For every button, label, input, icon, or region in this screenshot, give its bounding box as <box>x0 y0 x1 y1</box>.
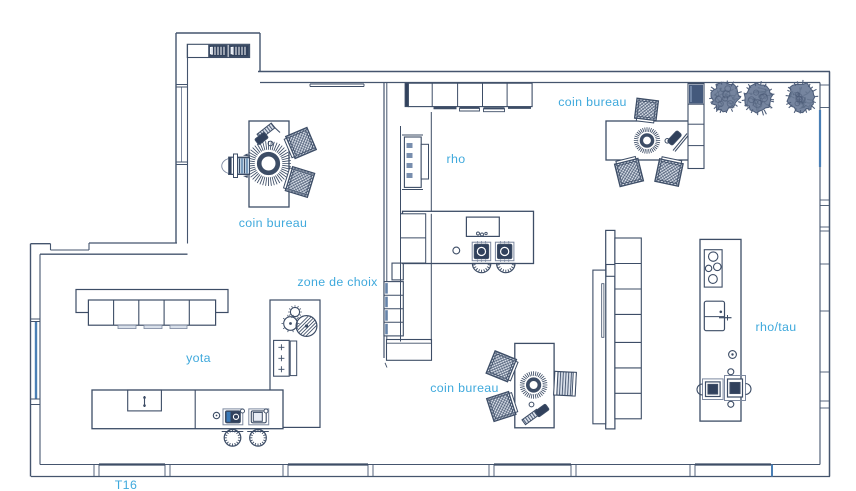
svg-text:coin bureau: coin bureau <box>239 216 308 230</box>
svg-text:rho: rho <box>447 152 466 166</box>
svg-text:rho/tau: rho/tau <box>755 320 796 334</box>
svg-text:T16: T16 <box>115 478 138 491</box>
svg-text:yota: yota <box>186 351 211 365</box>
svg-text:coin bureau: coin bureau <box>430 381 499 395</box>
svg-text:zone de choix: zone de choix <box>297 275 378 289</box>
svg-text:coin bureau: coin bureau <box>558 95 627 109</box>
